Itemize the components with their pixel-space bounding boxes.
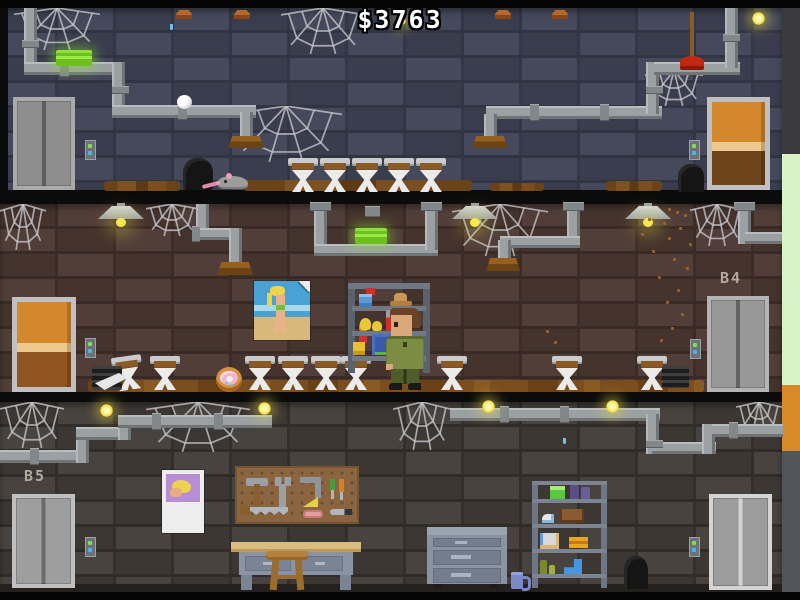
call-button-up-light: [88, 144, 92, 148]
floor-slab: [0, 392, 782, 402]
call-button-up-light: [88, 342, 92, 346]
knife-icon[interactable]: [330, 509, 352, 515]
call-button-down-light: [692, 548, 696, 552]
spray-body: [359, 294, 372, 307]
side-shaft-gray: [782, 451, 800, 592]
water-drip: [170, 24, 173, 30]
ceiling-lamp: [452, 206, 498, 230]
dust-speck: [546, 330, 549, 333]
dirt-patch: [104, 181, 180, 191]
plunger-rim: [680, 66, 704, 70]
calendar-grid: [165, 507, 201, 530]
janitor-shoe: [389, 383, 402, 390]
blue-boot[interactable]: [564, 559, 582, 574]
hammer-handle: [254, 484, 260, 506]
hat[interactable]: [390, 293, 412, 306]
toilet-base: [282, 368, 304, 390]
janitor-button: [403, 342, 407, 347]
side-shaft-dark: [782, 8, 800, 154]
elevator-call-button[interactable]: [690, 339, 701, 359]
elevator-door-b5[interactable]: [12, 494, 75, 588]
shelf-board: [532, 481, 607, 485]
dust-speck: [681, 313, 684, 316]
stool[interactable]: [266, 551, 308, 590]
water-drip: [563, 438, 566, 444]
rat-body: [218, 176, 248, 189]
poster-girl-hair-strand: [267, 293, 272, 306]
dust-speck: [663, 222, 666, 225]
toilet-base: [441, 368, 463, 390]
poster-girl-leg: [281, 319, 285, 333]
letterbox-bottom: [0, 592, 800, 600]
file-cabinet[interactable]: [427, 527, 507, 588]
wooden-door-top-right[interactable]: [707, 97, 770, 190]
trash-bag[interactable]: [624, 556, 648, 589]
pipe-joint: [365, 206, 380, 217]
shelf-board: [532, 524, 607, 528]
floor-label-b5: B5: [24, 467, 46, 485]
drawer-handle: [451, 555, 471, 559]
spray-bottle-blue[interactable]: [358, 288, 375, 307]
janitor-shoe: [408, 383, 421, 390]
stool-crossbar: [274, 575, 300, 579]
call-button-down-light: [692, 151, 696, 155]
ceiling-cap: [552, 10, 568, 19]
pipe: [118, 415, 272, 428]
call-button-down-light: [88, 151, 92, 155]
elevator-door-top-left[interactable]: [13, 97, 75, 190]
call-button-up-light: [692, 144, 696, 148]
floor-vent: [662, 366, 689, 388]
dust-speck: [658, 276, 661, 279]
elevator-call-button[interactable]: [689, 140, 700, 160]
elevator-doors: [713, 498, 768, 586]
lamp-bulb: [116, 218, 126, 227]
call-button-up-light: [692, 541, 696, 545]
firefly: [100, 404, 113, 417]
toilet[interactable]: [384, 158, 414, 192]
drawer-handle: [451, 573, 471, 577]
dust-speck: [677, 289, 680, 292]
toilet-base: [154, 368, 176, 390]
dirt-patch: [606, 181, 662, 191]
rat[interactable]: [202, 172, 252, 190]
screwdriver-green-tip: [331, 490, 334, 499]
mug[interactable]: [511, 572, 527, 589]
saw-blade[interactable]: [250, 507, 288, 515]
green-box[interactable]: [550, 486, 565, 499]
stool-seat: [266, 551, 308, 560]
dirt-mound: [228, 136, 264, 148]
pipe: [712, 424, 783, 437]
plunger[interactable]: [679, 12, 705, 70]
pipe-joint: [560, 406, 569, 423]
dust-speck: [660, 339, 663, 342]
toilet-base: [292, 170, 314, 192]
elevator-call-button[interactable]: [689, 537, 700, 557]
moth: [177, 95, 192, 109]
toilet[interactable]: [352, 158, 382, 192]
game-scene: B4 B5 $3763: [0, 0, 800, 600]
dust-speck: [666, 301, 669, 304]
elevator-doors: [711, 300, 765, 388]
elevator-call-button[interactable]: [85, 537, 96, 557]
spider-web: [0, 204, 46, 250]
crate-box[interactable]: [560, 509, 584, 523]
screwdriver-orange-tip: [340, 492, 343, 500]
spray-body: [353, 342, 365, 355]
pipe-joint: [646, 440, 663, 448]
toilet[interactable]: [150, 356, 180, 390]
pipe: [500, 236, 580, 248]
toilet-base: [556, 368, 578, 390]
floor-label-b4: B4: [720, 269, 742, 287]
pipe: [745, 232, 782, 244]
toilet[interactable]: [320, 158, 350, 192]
dust-speck: [648, 218, 651, 221]
elevator-doors: [16, 498, 71, 584]
calendar: [162, 470, 204, 533]
trash-bag[interactable]: [678, 164, 704, 192]
cabinet-top: [427, 527, 507, 535]
rat-ear: [226, 173, 232, 179]
janitor-pants: [391, 369, 419, 384]
pipe-joint: [112, 86, 129, 94]
side-shaft-wood: [782, 385, 800, 451]
hat-brim: [390, 301, 412, 306]
cabinet-drawer[interactable]: [433, 538, 501, 547]
pipe-joint: [310, 202, 331, 211]
firefly: [606, 400, 619, 413]
pipe-joint: [723, 34, 740, 42]
rubber-duck[interactable]: [372, 321, 382, 331]
toilet[interactable]: [245, 356, 275, 390]
calendar-pinup-skin: [170, 488, 182, 497]
call-button-down-light: [88, 349, 92, 353]
plunger-handle: [690, 12, 694, 58]
yellow-box[interactable]: [569, 537, 588, 548]
bench-leg: [241, 575, 252, 590]
wrench-shaft: [279, 484, 286, 508]
pipe-joint: [421, 202, 442, 211]
rat-nose: [216, 181, 220, 185]
janitor-hair-back: [411, 314, 420, 328]
pipe-joint: [500, 406, 509, 423]
side-shaft-lit: [782, 154, 800, 385]
screwdriver-orange[interactable]: [339, 479, 344, 492]
dust-speck: [668, 208, 671, 211]
janitor-eye: [394, 322, 398, 327]
dirt-mound: [217, 262, 253, 275]
toilet[interactable]: [437, 356, 467, 390]
dust-speck: [554, 341, 557, 344]
olive-bottle[interactable]: [549, 565, 555, 574]
toilet[interactable]: [288, 158, 318, 192]
call-button-down-light: [88, 548, 92, 552]
pinup-poster: [254, 281, 310, 340]
poster-girl-bikini: [276, 305, 285, 310]
ceiling-cap: [495, 10, 511, 19]
drawer-handle: [455, 541, 467, 544]
lamp-bulb: [470, 218, 480, 227]
pipe: [314, 244, 438, 256]
cheese-wedge[interactable]: [303, 497, 318, 507]
dust-speck: [673, 258, 676, 261]
mug-handle: [522, 576, 531, 591]
pipe-joint: [646, 86, 663, 94]
crowbar-leg: [315, 477, 321, 498]
saw-handle: [240, 505, 250, 515]
dust-speck: [652, 250, 655, 253]
ceiling-cap: [234, 10, 250, 19]
white-shoe[interactable]: [542, 514, 554, 523]
left-edge-shadow: [0, 8, 8, 190]
firefly: [752, 12, 765, 25]
pipe: [0, 450, 88, 463]
shelf-rail: [532, 481, 538, 588]
money-counter: $3763: [357, 5, 442, 34]
janitor-character[interactable]: [386, 308, 424, 390]
spider-web: [393, 402, 451, 450]
spider-web: [146, 204, 198, 236]
pipe-joint: [729, 422, 738, 439]
dust-speck: [686, 267, 689, 270]
dirt-patch: [490, 183, 544, 191]
pipe-joint: [30, 448, 39, 465]
shelf-board: [532, 574, 607, 578]
shelf-rail: [601, 481, 607, 588]
toilet-base: [388, 170, 410, 192]
spider-web: [281, 8, 365, 54]
dust-speck: [689, 243, 692, 246]
pipe-joint: [192, 226, 200, 242]
pipe-joint: [214, 413, 223, 430]
rat-eye: [224, 180, 227, 183]
toilet[interactable]: [552, 356, 582, 390]
pipe-joint: [530, 104, 539, 121]
pipe-joint: [600, 104, 609, 121]
purple-bottle[interactable]: [570, 485, 579, 499]
dirt-mound: [472, 136, 508, 148]
toilet[interactable]: [311, 356, 341, 390]
soap-bar-pickup[interactable]: [355, 228, 387, 244]
elevator-door-b4[interactable]: [707, 296, 769, 392]
ham-slice[interactable]: [303, 510, 323, 518]
drawer-handle: [315, 562, 325, 565]
call-button-down-light: [693, 350, 697, 354]
dust-speck: [679, 227, 682, 230]
wooden-door-b4-left[interactable]: [12, 297, 76, 392]
pipe-joint: [563, 202, 584, 211]
toilet-base: [324, 170, 346, 192]
shelf-board: [532, 549, 607, 553]
firefly: [258, 402, 271, 415]
olive-bottle[interactable]: [540, 560, 547, 574]
pipe-joint: [734, 202, 755, 211]
cabinet-wheel: [489, 584, 497, 588]
pipe: [486, 106, 662, 119]
dust-speck: [641, 233, 644, 236]
pegboard: [237, 468, 357, 522]
toilet[interactable]: [278, 356, 308, 390]
toilet-base: [356, 170, 378, 192]
poster-fold-corner: [298, 281, 310, 293]
dust-speck: [671, 327, 674, 330]
donut-hole: [226, 376, 233, 382]
toilet-base: [641, 368, 663, 390]
dust-speck: [668, 237, 671, 240]
call-button-up-light: [88, 541, 92, 545]
purple-bottle[interactable]: [581, 487, 590, 499]
spray-bottle-yellow[interactable]: [352, 336, 367, 355]
elevator-doors: [17, 101, 71, 186]
white-box[interactable]: [540, 533, 559, 549]
shelf-board: [532, 499, 607, 503]
ceiling-lamp: [98, 206, 144, 230]
storage-shelf: [532, 481, 607, 588]
pipe-joint: [152, 413, 161, 430]
toilet-base: [315, 368, 337, 390]
ceiling-cap: [176, 10, 192, 19]
dust-speck: [676, 211, 679, 214]
toilet-base: [249, 368, 271, 390]
screwdriver-green[interactable]: [330, 479, 335, 490]
poster-girl-leg: [275, 319, 279, 333]
firefly: [482, 400, 495, 413]
elevator-call-button[interactable]: [85, 140, 96, 160]
elevator-door-b5-right[interactable]: [709, 494, 772, 590]
pipe-joint: [22, 40, 39, 48]
donut[interactable]: [216, 367, 242, 392]
dust-speck: [684, 214, 687, 217]
dirt-mound: [486, 258, 520, 271]
call-button-up-light: [693, 343, 697, 347]
soap-bar-pickup[interactable]: [56, 50, 92, 66]
floor-ground: [0, 584, 782, 592]
toilet[interactable]: [416, 158, 446, 192]
cabinet-wheel: [435, 584, 443, 588]
pipe: [24, 8, 37, 66]
toilet-base: [420, 170, 442, 192]
floor-slab: [0, 190, 782, 204]
pipe: [450, 408, 660, 421]
spider-web: [0, 402, 64, 448]
bench-leg: [340, 575, 351, 590]
elevator-call-button[interactable]: [85, 338, 96, 358]
rubber-duck[interactable]: [360, 318, 371, 330]
